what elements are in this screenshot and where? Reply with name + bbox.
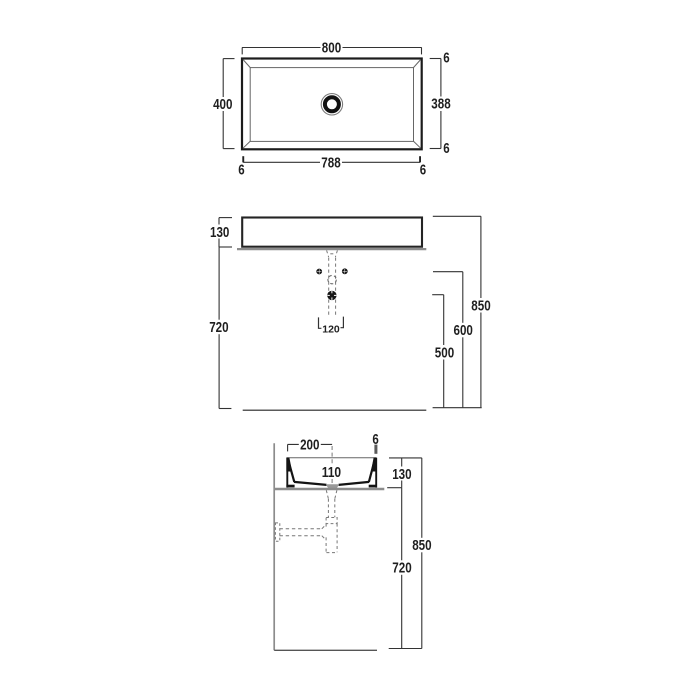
svg-text:120: 120 [322, 323, 340, 335]
svg-text:600: 600 [454, 323, 473, 339]
svg-text:400: 400 [213, 97, 232, 113]
svg-text:720: 720 [209, 320, 228, 336]
svg-text:130: 130 [392, 467, 411, 483]
svg-text:6: 6 [443, 141, 449, 157]
svg-text:720: 720 [392, 561, 411, 577]
svg-text:6: 6 [238, 162, 244, 178]
svg-text:788: 788 [321, 155, 340, 171]
svg-text:200: 200 [300, 438, 319, 454]
svg-text:850: 850 [471, 298, 490, 314]
svg-text:500: 500 [435, 346, 454, 362]
svg-text:388: 388 [431, 97, 450, 113]
svg-text:6: 6 [420, 162, 426, 178]
svg-text:6: 6 [443, 51, 449, 67]
svg-text:130: 130 [210, 225, 229, 241]
svg-text:800: 800 [322, 40, 341, 56]
svg-text:110: 110 [322, 465, 341, 481]
svg-text:850: 850 [412, 538, 431, 554]
